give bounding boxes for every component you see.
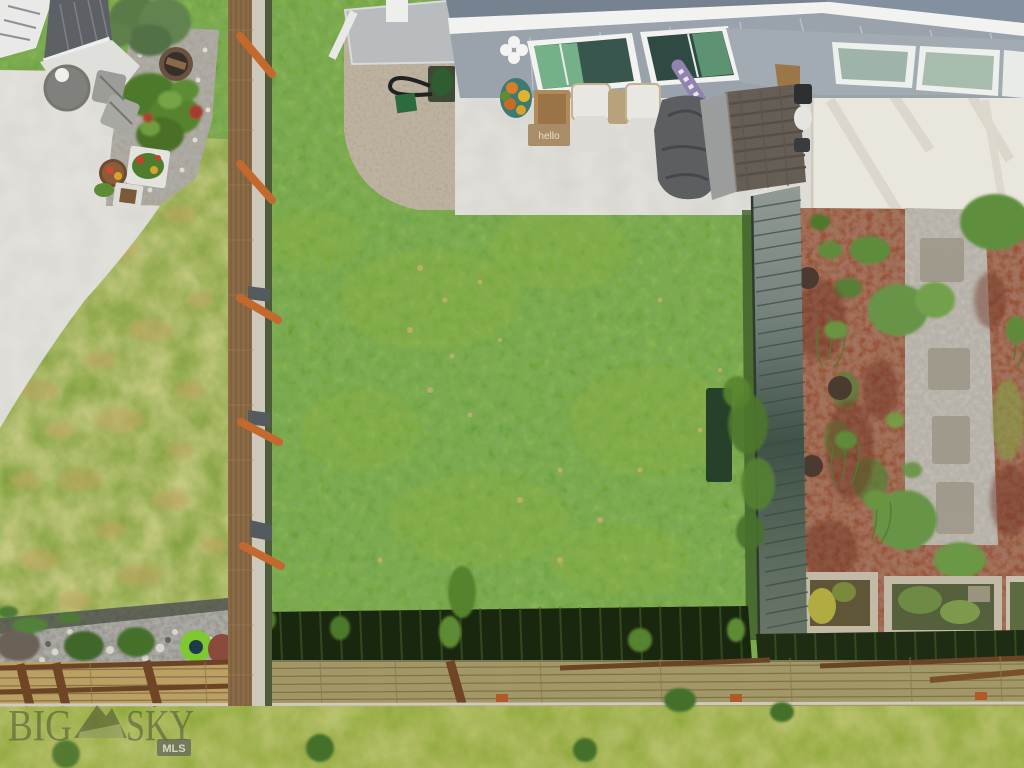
svg-text:hello: hello (538, 131, 560, 142)
svg-text:BIG: BIG (8, 701, 72, 750)
svg-text:MLS: MLS (162, 743, 185, 755)
